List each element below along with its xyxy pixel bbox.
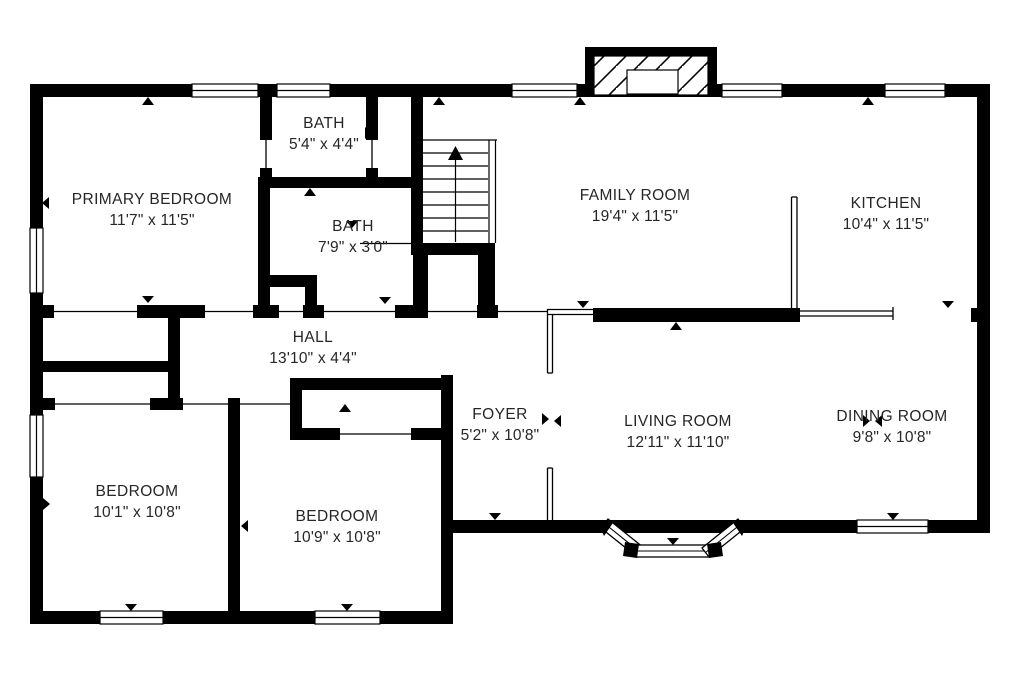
room-name: LIVING ROOM	[624, 411, 732, 432]
staircase	[423, 140, 497, 243]
room-name: BATH	[289, 113, 359, 134]
fireplace-chimney	[585, 47, 717, 97]
floorplan-page: PRIMARY BEDROOM 11'7" x 11'5" BATH 5'4" …	[0, 0, 1024, 694]
room-dims: 7'9" x 3'0"	[318, 237, 388, 258]
room-dims: 10'1" x 10'8"	[93, 502, 181, 523]
window	[30, 228, 43, 293]
room-label-foyer: FOYER 5'2" x 10'8"	[461, 404, 540, 446]
window	[512, 84, 577, 97]
room-dims: 13'10" x 4'4"	[269, 348, 357, 369]
room-name: PRIMARY BEDROOM	[72, 189, 232, 210]
room-dims: 10'9" x 10'8"	[293, 527, 381, 548]
room-name: HALL	[269, 327, 357, 348]
room-name: FAMILY ROOM	[580, 185, 691, 206]
window	[30, 415, 43, 477]
room-label-kitchen: KITCHEN 10'4" x 11'5"	[843, 193, 929, 235]
room-label-hall: HALL 13'10" x 4'4"	[269, 327, 357, 369]
room-name: BEDROOM	[293, 506, 381, 527]
room-name: DINING ROOM	[836, 406, 947, 427]
room-name: BEDROOM	[93, 481, 181, 502]
room-name: KITCHEN	[843, 193, 929, 214]
room-dims: 5'4" x 4'4"	[289, 134, 359, 155]
room-label-dining-room: DINING ROOM 9'8" x 10'8"	[836, 406, 947, 448]
room-label-family-room: FAMILY ROOM 19'4" x 11'5"	[580, 185, 691, 227]
room-dims: 11'7" x 11'5"	[72, 210, 232, 231]
room-label-bath-upper: BATH 5'4" x 4'4"	[289, 113, 359, 155]
room-label-bath-lower: BATH 7'9" x 3'0"	[318, 216, 388, 258]
door-markers	[42, 97, 985, 611]
room-name: BATH	[318, 216, 388, 237]
room-dims: 5'2" x 10'8"	[461, 425, 540, 446]
room-dims: 9'8" x 10'8"	[836, 427, 947, 448]
room-label-primary-bedroom: PRIMARY BEDROOM 11'7" x 11'5"	[72, 189, 232, 231]
window	[277, 84, 330, 97]
window	[722, 84, 782, 97]
half-walls	[547, 197, 893, 522]
window	[100, 611, 163, 624]
room-label-bedroom-left: BEDROOM 10'1" x 10'8"	[93, 481, 181, 523]
window	[315, 611, 380, 624]
room-label-bedroom-middle: BEDROOM 10'9" x 10'8"	[293, 506, 381, 548]
window	[192, 84, 258, 97]
room-dims: 10'4" x 11'5"	[843, 214, 929, 235]
window	[885, 84, 945, 97]
room-name: FOYER	[461, 404, 540, 425]
floorplan-drawing	[0, 0, 1024, 694]
room-dims: 19'4" x 11'5"	[580, 206, 691, 227]
windows	[30, 84, 945, 624]
room-label-living-room: LIVING ROOM 12'11" x 11'10"	[624, 411, 732, 453]
window	[857, 520, 928, 533]
room-dims: 12'11" x 11'10"	[624, 432, 732, 453]
walls	[30, 84, 990, 624]
